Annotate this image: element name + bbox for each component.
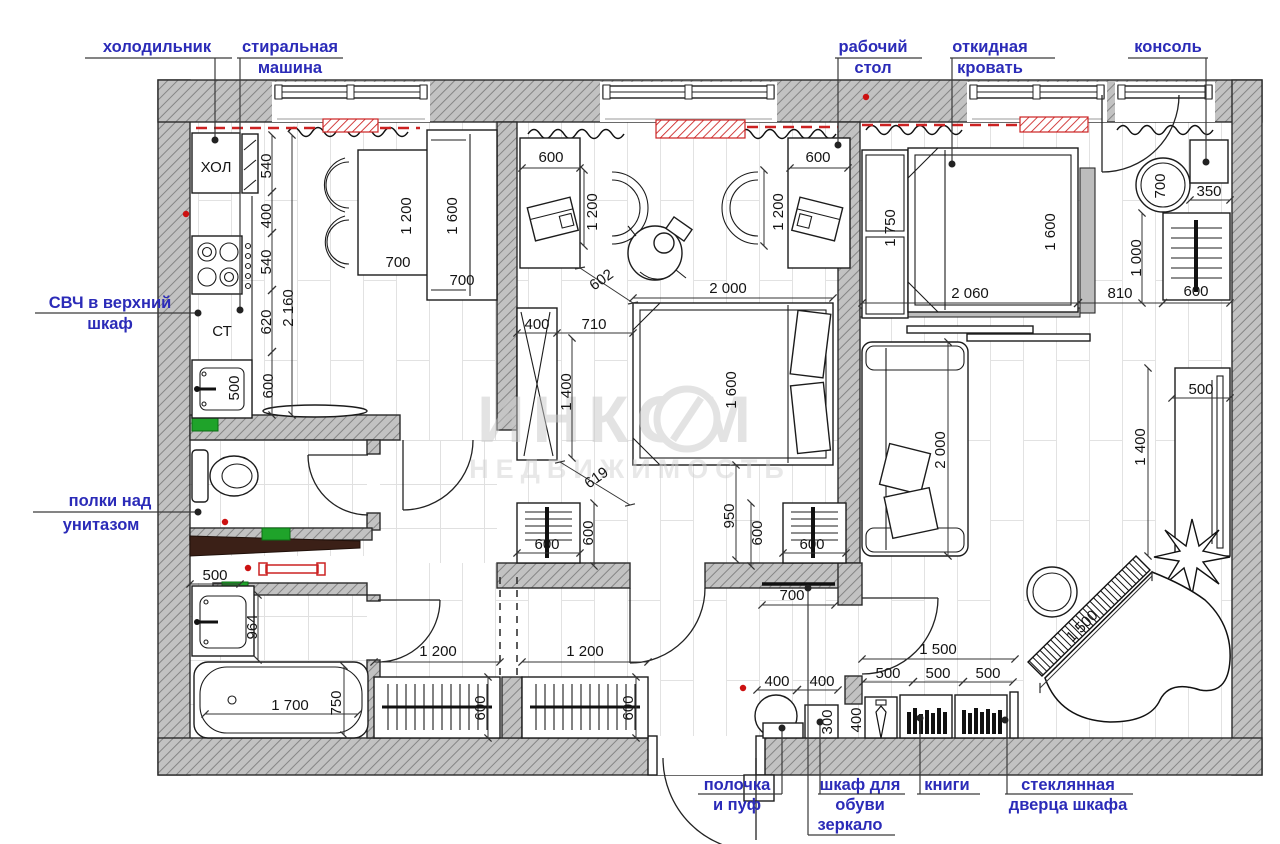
- dim-wardrobe-400: 400: [524, 316, 549, 333]
- wall-right: [1232, 80, 1262, 775]
- dresser-left: [517, 503, 580, 563]
- dim-1000: 1 000: [1128, 239, 1145, 277]
- windows: [272, 82, 1215, 122]
- svg-text:СВЧ в верхний: СВЧ в верхний: [49, 294, 172, 312]
- kitchen-shelf: [263, 405, 367, 417]
- pillow: [790, 310, 831, 378]
- dim-tub-750: 750: [328, 690, 345, 715]
- dim-dresser-right-side: 600: [749, 520, 766, 545]
- dim-1750: 1 750: [882, 209, 899, 247]
- dim-810: 810: [1107, 285, 1132, 302]
- dim-foldbed-1600: 1 600: [1042, 213, 1059, 251]
- wall-kitchen-bottom: [190, 415, 400, 440]
- piano-stool: [1027, 567, 1077, 617]
- svg-text:консоль: консоль: [1134, 38, 1202, 56]
- dim-kitchen-620: 620: [258, 309, 275, 334]
- dim-tub-1700: 1 700: [271, 697, 309, 714]
- dim-tie-400: 400: [848, 707, 865, 732]
- dim-bench-1600: 1 600: [444, 197, 461, 235]
- floor-plan-drawing: ХОЛ СТ: [0, 0, 1280, 844]
- dim-kitchen-600: 600: [260, 373, 277, 398]
- dresser-right: [783, 503, 846, 563]
- dim-cabinet-1400: 1 400: [1132, 428, 1149, 466]
- dim-dresser-600: 600: [1183, 283, 1208, 300]
- dim-dresser-left-side: 600: [580, 520, 597, 545]
- dim-dresser-left: 600: [534, 536, 559, 553]
- dim-950: 950: [721, 503, 738, 528]
- dim-bench-700: 700: [449, 272, 474, 289]
- svg-text:машина: машина: [258, 59, 323, 77]
- dim-wardrobe2-600: 600: [620, 695, 637, 720]
- svg-text:полочка: полочка: [704, 776, 771, 794]
- svg-text:кровать: кровать: [957, 59, 1023, 77]
- dim-foldbed-2060: 2 060: [951, 285, 989, 302]
- window-kitchen: [272, 82, 430, 122]
- svg-text:стол: стол: [854, 59, 891, 77]
- dim-bathsink-500: 500: [202, 567, 227, 584]
- fridge-label: ХОЛ: [201, 159, 232, 176]
- dim-bed-2000: 2 000: [709, 280, 747, 297]
- dim-bed-1600: 1 600: [723, 371, 740, 409]
- sofa-pillow: [880, 444, 931, 495]
- toilet-tank: [192, 450, 208, 502]
- svg-text:холодильник: холодильник: [103, 38, 212, 56]
- dim-table-1200: 1 200: [398, 197, 415, 235]
- red-hatch-kids: [656, 120, 745, 138]
- dim-kitchen-400: 400: [258, 203, 275, 228]
- tie-cabinet: [865, 697, 897, 738]
- dim-table-round-700: 700: [1152, 173, 1169, 198]
- dim-desk-right-600: 600: [805, 149, 830, 166]
- svg-text:обуви: обуви: [835, 796, 885, 814]
- sofa-pillow: [884, 488, 938, 539]
- pillow: [791, 382, 831, 453]
- dim-shoe-400: 400: [809, 673, 834, 690]
- red-hatch-bedroom: [1020, 117, 1088, 132]
- dim-wardrobe1-600: 600: [472, 695, 489, 720]
- dim-cab2-500: 500: [925, 665, 950, 682]
- svg-text:шкаф для: шкаф для: [820, 776, 901, 794]
- dim-dresser-right: 600: [799, 536, 824, 553]
- svg-text:рабочий: рабочий: [839, 38, 908, 56]
- green-mark-2: [262, 528, 290, 540]
- stove: [192, 236, 251, 294]
- red-hatch-kitchen: [323, 119, 378, 132]
- svg-text:полки над: полки над: [69, 492, 152, 510]
- toilet-bowl: [210, 456, 258, 496]
- dim-desk-left-600: 600: [538, 149, 563, 166]
- kitchen-sink: [192, 360, 252, 418]
- svg-text:унитазом: унитазом: [63, 516, 140, 534]
- wall-left: [158, 80, 190, 775]
- dim-kitchen-540b: 540: [258, 249, 275, 274]
- dim-710: 710: [581, 316, 606, 333]
- window-kids: [600, 82, 777, 122]
- dim-cab3-500: 500: [975, 665, 1000, 682]
- dim-kitchen-sink-500: 500: [226, 375, 243, 400]
- dim-cabinets-1500: 1 500: [919, 641, 957, 658]
- dim-cabinet-500: 500: [1188, 381, 1213, 398]
- dim-wardrobe2-1200: 1 200: [566, 643, 604, 660]
- window-bedroom: [967, 82, 1107, 122]
- dim-table-700: 700: [385, 254, 410, 271]
- dim-cab1-500: 500: [875, 665, 900, 682]
- dim-pouf-400: 400: [764, 673, 789, 690]
- watermark-subtitle: НЕДВИЖИМОСТЬ: [469, 454, 791, 484]
- svg-text:стеклянная: стеклянная: [1021, 776, 1115, 794]
- svg-text:книги: книги: [924, 776, 969, 794]
- dim-mirror-700: 700: [779, 587, 804, 604]
- dim-wardrobe1-1200: 1 200: [419, 643, 457, 660]
- dim-chair-left-1200: 1 200: [584, 193, 601, 231]
- svg-text:откидная: откидная: [952, 38, 1027, 56]
- floor-plan-page: ХОЛ СТ: [0, 0, 1280, 844]
- dim-kitchen-2160: 2 160: [280, 289, 297, 327]
- dim-964: 964: [244, 614, 261, 639]
- book-cabinet-2: [955, 695, 1007, 738]
- green-mark-1: [192, 417, 218, 431]
- dim-sofa-2000: 2 000: [932, 431, 949, 469]
- svg-text:зеркало: зеркало: [817, 816, 882, 834]
- svg-text:шкаф: шкаф: [87, 315, 133, 333]
- dim-wardrobe-1400: 1 400: [558, 373, 575, 411]
- dim-chair-right-1200: 1 200: [770, 193, 787, 231]
- dim-console-350: 350: [1196, 183, 1221, 200]
- svg-text:и пуф: и пуф: [713, 796, 761, 814]
- fridge-side-cabinet: [242, 134, 258, 193]
- svg-text:стиральная: стиральная: [242, 38, 338, 56]
- wall-kids-bottom-left: [497, 563, 630, 588]
- countertop-label: СТ: [212, 323, 232, 340]
- book-cabinet-1: [900, 695, 952, 738]
- dim-kitchen-540a: 540: [258, 153, 275, 178]
- window-console: [1115, 82, 1215, 122]
- watermark: ИНКОМ НЕДВИЖИМОСТЬ: [469, 382, 791, 484]
- sofa: [862, 342, 968, 556]
- svg-text:дверца шкафа: дверца шкафа: [1009, 796, 1128, 814]
